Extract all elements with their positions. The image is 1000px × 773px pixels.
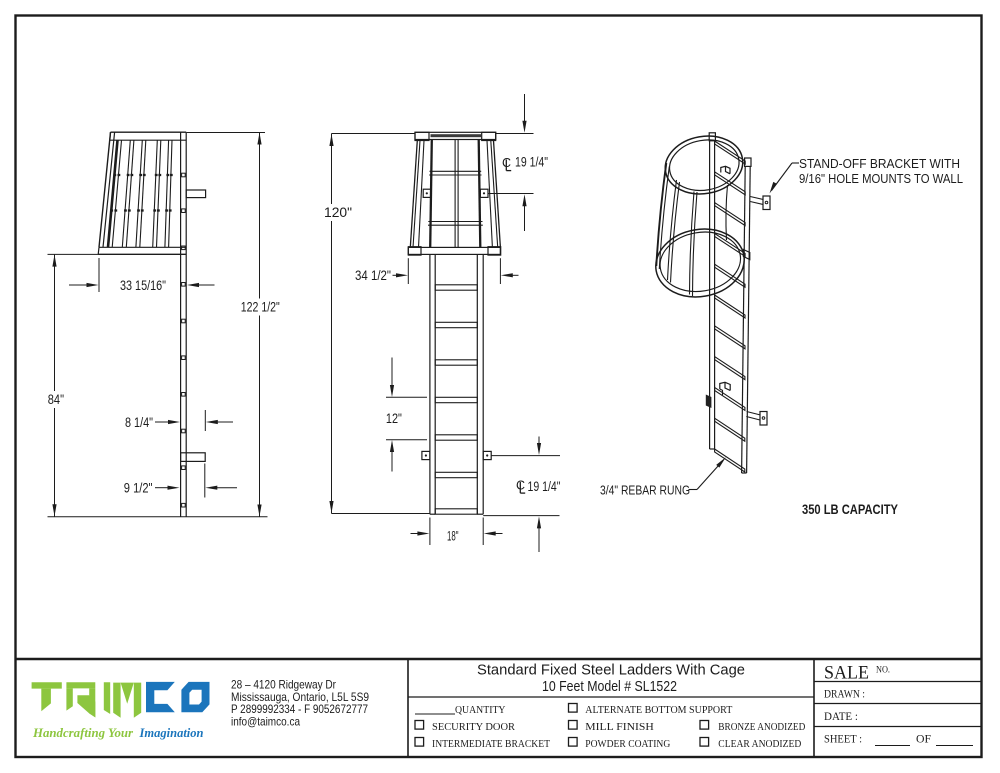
svg-text:10 Feet Model # SL1522: 10 Feet Model # SL1522: [542, 679, 677, 695]
svg-text:8 1/4": 8 1/4": [125, 414, 153, 430]
svg-text:33 15/16": 33 15/16": [120, 277, 166, 293]
svg-text:SECURITY DOOR: SECURITY DOOR: [432, 722, 516, 733]
svg-text:POWDER COATING: POWDER COATING: [585, 739, 670, 750]
svg-text:9/16" HOLE MOUNTS TO WALL: 9/16" HOLE MOUNTS TO WALL: [799, 171, 963, 186]
svg-text:3/4" REBAR RUNG: 3/4" REBAR RUNG: [600, 483, 690, 498]
svg-text:NO.: NO.: [876, 666, 890, 676]
svg-text:OF: OF: [916, 734, 931, 746]
svg-text:info@taimco.ca: info@taimco.ca: [231, 714, 300, 728]
svg-text:ALTERNATE BOTTOM SUPPORT: ALTERNATE BOTTOM SUPPORT: [585, 705, 732, 716]
svg-text:Standard Fixed Steel Ladders: Standard Fixed Steel Ladders With Cage: [477, 663, 745, 679]
svg-text:122 1/2": 122 1/2": [241, 299, 280, 315]
svg-text:CLEAR ANODIZED: CLEAR ANODIZED: [718, 739, 801, 750]
svg-text:QUANTITY: QUANTITY: [455, 705, 506, 716]
svg-text:INTERMEDIATE BRACKET: INTERMEDIATE BRACKET: [432, 739, 550, 750]
svg-text:12": 12": [386, 410, 402, 426]
svg-text:19 1/4": 19 1/4": [528, 478, 561, 494]
svg-text:Imagination: Imagination: [139, 725, 204, 740]
svg-text:18": 18": [447, 528, 459, 544]
svg-text:DATE :: DATE :: [824, 711, 858, 723]
svg-text:350 LB CAPACITY: 350 LB CAPACITY: [802, 502, 898, 517]
svg-text:BRONZE ANODIZED: BRONZE ANODIZED: [718, 722, 805, 733]
svg-text:SALE: SALE: [824, 663, 869, 684]
svg-text:Handcrafting Your: Handcrafting Your: [32, 725, 134, 740]
svg-text:19 1/4": 19 1/4": [515, 154, 548, 170]
svg-text:9 1/2": 9 1/2": [124, 480, 153, 496]
svg-text:DRAWN :: DRAWN :: [824, 689, 865, 701]
svg-text:SHEET :: SHEET :: [824, 734, 862, 746]
svg-text:STAND-OFF BRACKET WITH: STAND-OFF BRACKET WITH: [799, 156, 960, 171]
svg-text:84": 84": [48, 391, 64, 407]
svg-text:MILL FINISH: MILL FINISH: [585, 722, 654, 733]
svg-text:34 1/2": 34 1/2": [355, 267, 391, 283]
svg-text:120": 120": [324, 204, 352, 220]
